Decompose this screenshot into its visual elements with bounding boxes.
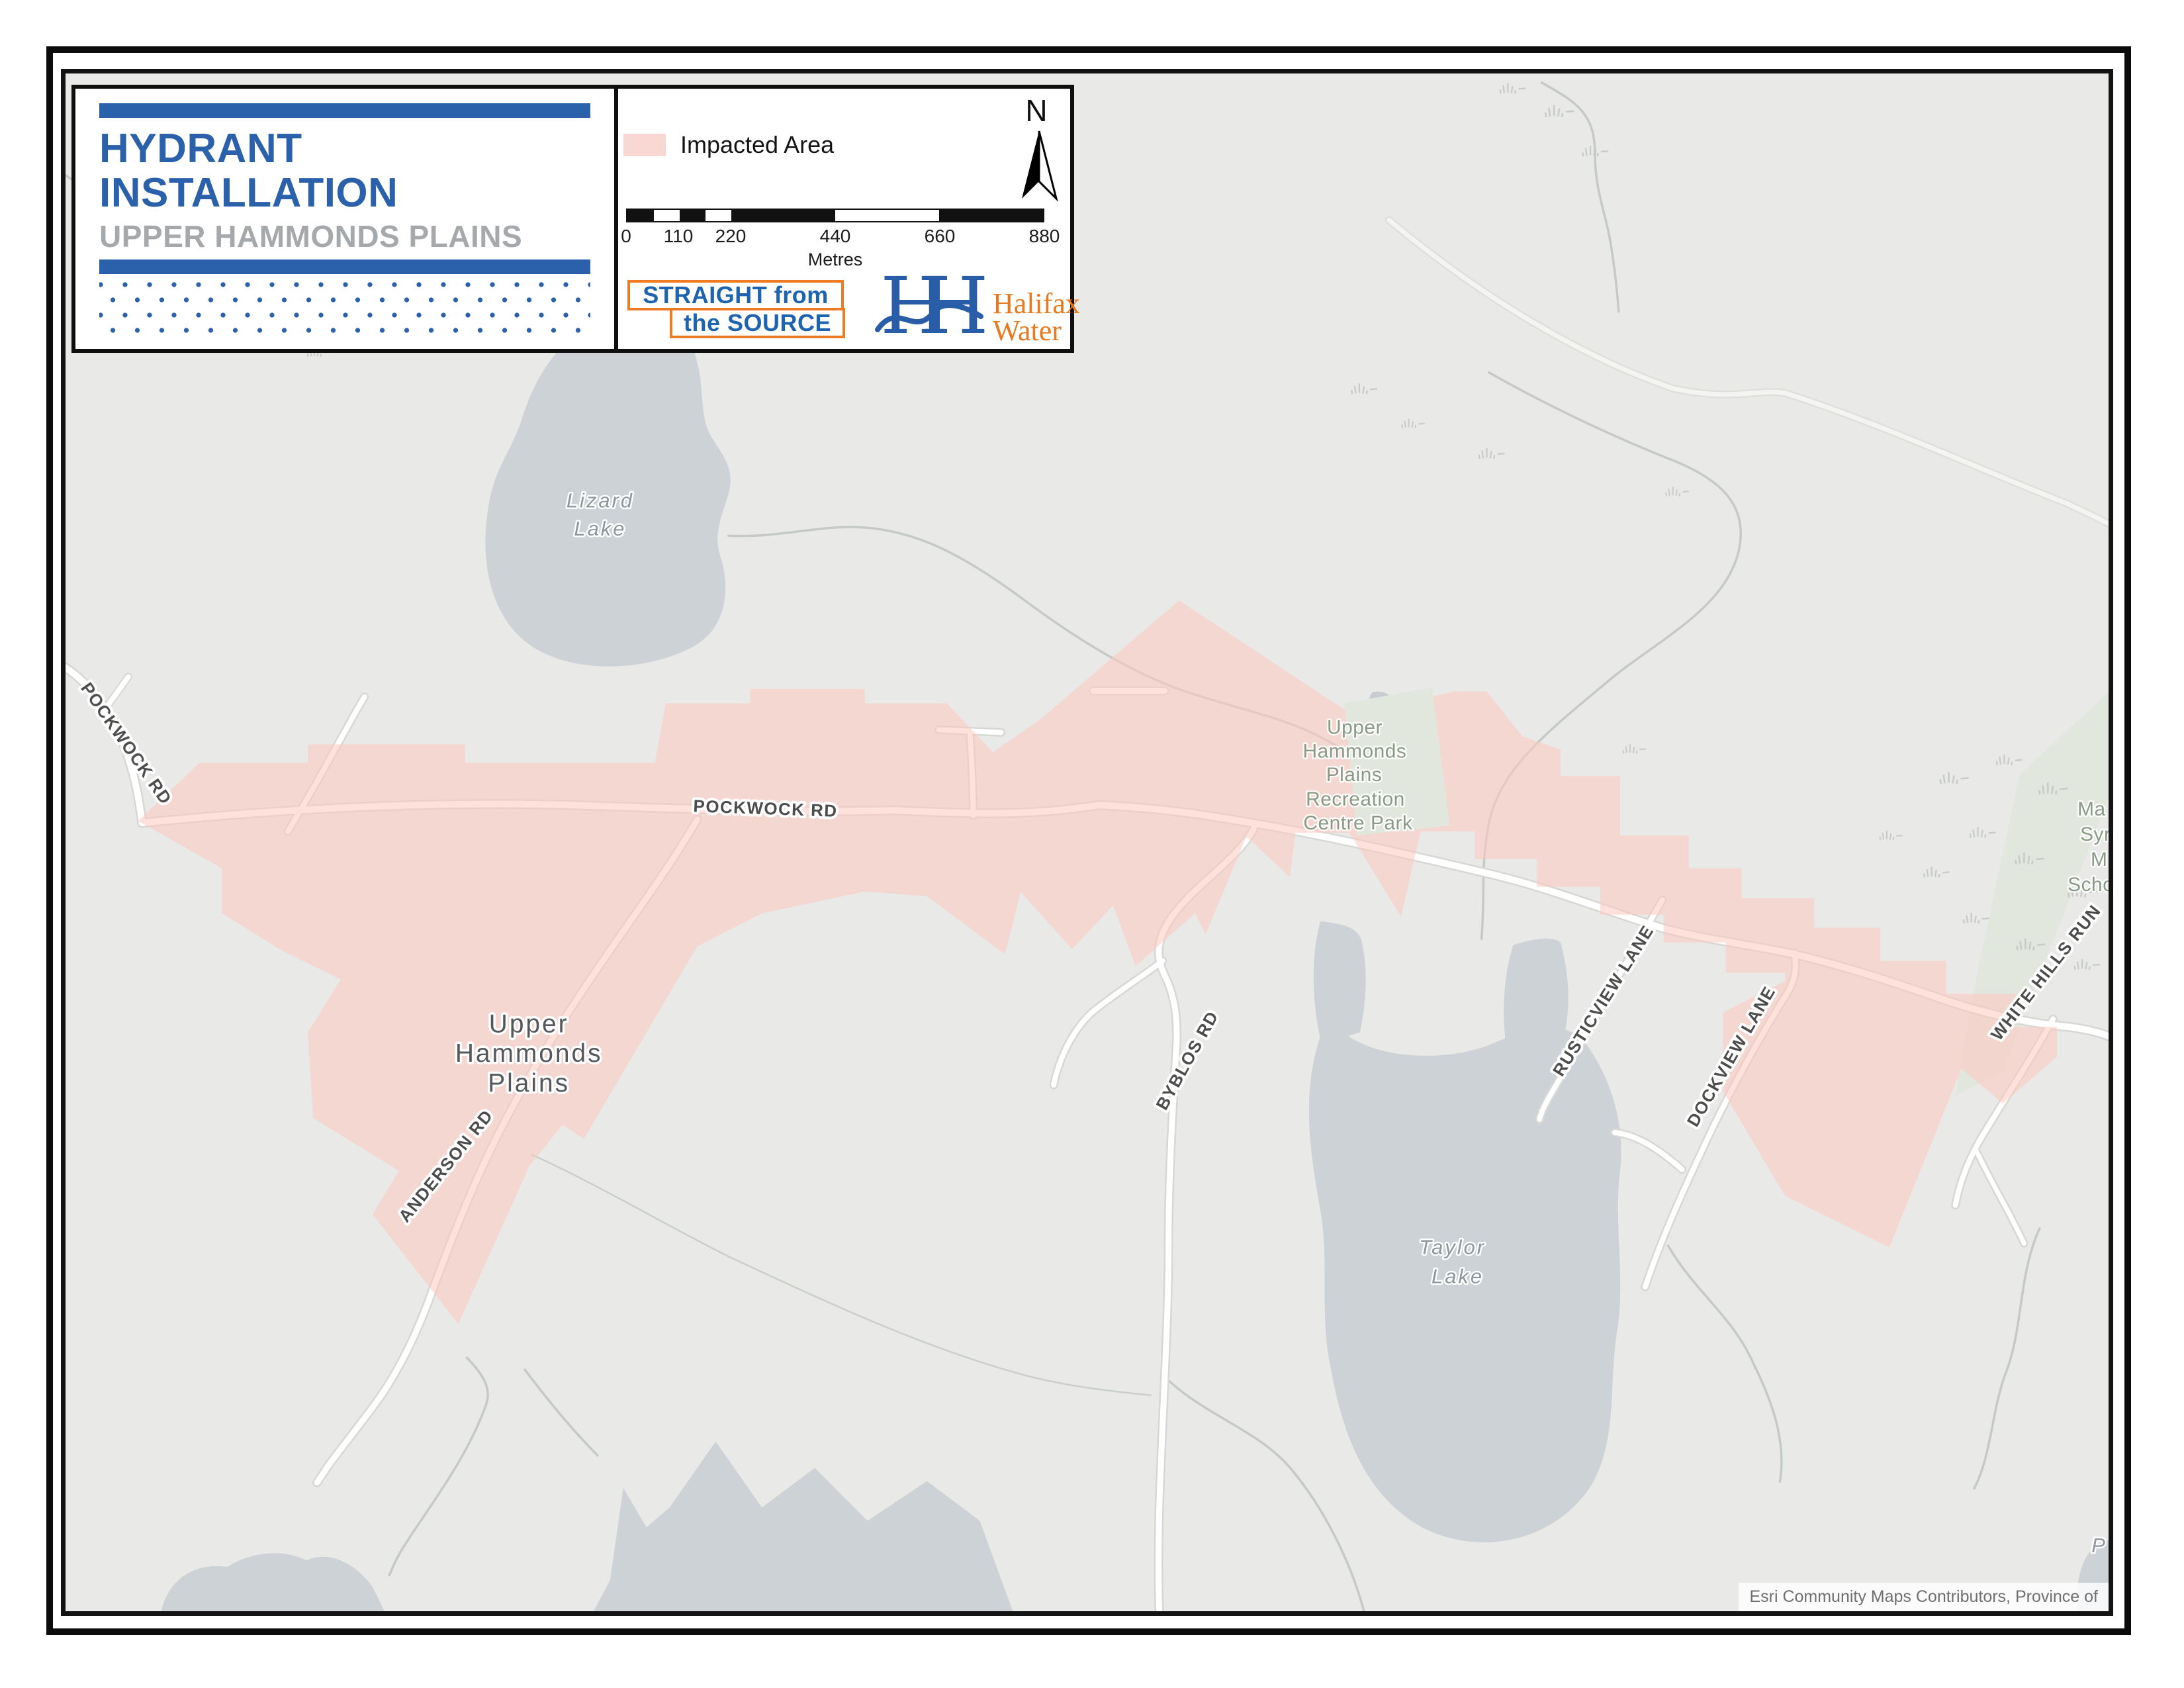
halifax-water-logo: HH Halifax Water: [880, 273, 1080, 346]
water-word: Water: [993, 317, 1080, 344]
sfs-line-2: the SOURCE: [670, 308, 845, 338]
north-arrow-icon: [1015, 130, 1063, 203]
page: POCKWOCK RD POCKWOCK RD ANDERSON RD BYBL…: [0, 0, 2184, 1688]
impacted-area-label: Impacted Area: [680, 131, 834, 159]
lizard-lake-label: Lake: [574, 517, 626, 540]
taylor-lake-label: Taylor: [1419, 1235, 1486, 1258]
north-label: N: [1015, 93, 1058, 128]
lizard-lake-label: Lizard: [567, 489, 634, 512]
map-subtitle: UPPER HAMMONDS PLAINS: [99, 218, 590, 254]
school-label-line: Ma: [2077, 798, 2106, 820]
title-line-2: INSTALLATION: [99, 171, 590, 216]
scale-tick: 220: [715, 226, 747, 247]
title-line-1: HYDRANT: [99, 127, 590, 171]
halifax-water-monogram-icon: HH: [880, 273, 986, 346]
park-label-line: Centre Park: [1303, 812, 1412, 834]
scale-tick: 880: [1029, 226, 1060, 247]
school-label-line: M: [2091, 849, 2107, 870]
title-accent-bar-top: [99, 103, 590, 118]
scale-tick: 0: [621, 226, 631, 247]
school-label-line: Syr: [2080, 823, 2109, 845]
dot-pattern: [99, 281, 590, 339]
scale-bar: [626, 209, 1044, 222]
park-label-line: Hammonds: [1302, 740, 1406, 762]
taylor-lake-label: Lake: [1432, 1264, 1484, 1288]
partial-lake-label: P: [2091, 1534, 2107, 1557]
north-arrow: N: [1015, 93, 1058, 203]
title-accent-bar-bottom: [99, 259, 590, 274]
halifax-water-wordmark: Halifax Water: [993, 290, 1080, 345]
place-label-line: Hammonds: [455, 1039, 603, 1068]
scale-tick: 440: [820, 226, 851, 247]
school-label-line: Scho: [2068, 874, 2109, 896]
legend-block: Impacted Area N 0 110: [618, 89, 1070, 349]
place-label-line: Upper: [489, 1009, 569, 1038]
place-label-line: Plains: [488, 1069, 570, 1098]
scale-tick: 110: [664, 226, 694, 247]
taylor-lake-east-arm: [1504, 939, 1568, 1058]
monogram-wave-icon: [875, 295, 984, 342]
straight-from-the-source-logo: STRAIGHT from the SOURCE: [627, 280, 845, 338]
legend-entry-impacted-area: Impacted Area: [623, 131, 834, 159]
park-label-line: Recreation: [1306, 788, 1405, 810]
taylor-lake-west-arm: [1314, 921, 1366, 1046]
scale-ticks: 0 110 220 440 660 880: [626, 226, 1044, 248]
halifax-word: Halifax: [993, 290, 1080, 317]
impacted-area-swatch: [623, 134, 666, 156]
map-attribution: Esri Community Maps Contributors, Provin…: [1739, 1583, 2109, 1611]
header-panel: HYDRANT INSTALLATION UPPER HAMMONDS PLAI…: [71, 85, 1074, 353]
scale-tick: 660: [925, 226, 956, 247]
map-title: HYDRANT INSTALLATION: [99, 127, 590, 216]
title-block: HYDRANT INSTALLATION UPPER HAMMONDS PLAI…: [75, 89, 618, 349]
park-label-line: Upper: [1327, 716, 1383, 738]
park-label-line: Plains: [1326, 764, 1382, 786]
sfs-line-1: STRAIGHT from: [627, 280, 844, 310]
